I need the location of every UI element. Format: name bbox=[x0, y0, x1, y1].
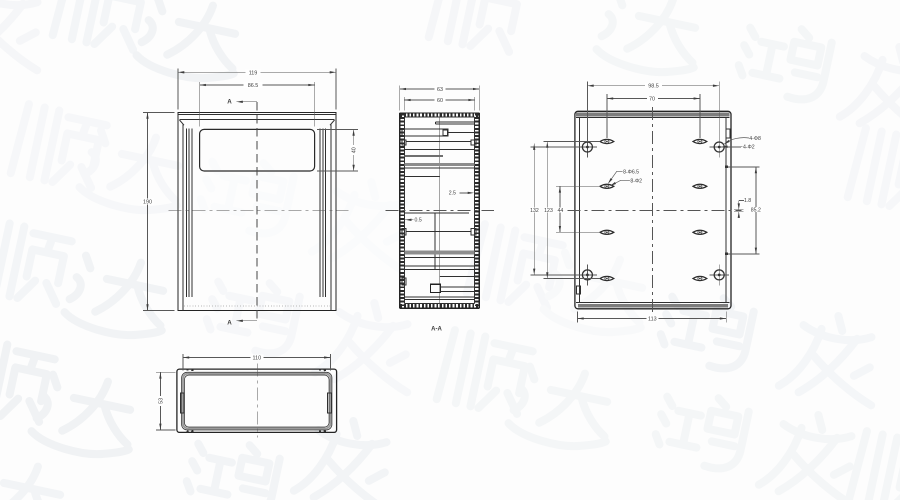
svg-text:2.5: 2.5 bbox=[449, 191, 456, 197]
svg-text:110: 110 bbox=[253, 355, 262, 361]
svg-text:113: 113 bbox=[648, 316, 657, 322]
svg-text:4-Φ8: 4-Φ8 bbox=[749, 136, 761, 142]
svg-text:A: A bbox=[227, 320, 232, 327]
svg-text:85.2: 85.2 bbox=[751, 207, 761, 213]
svg-text:44: 44 bbox=[558, 208, 564, 214]
svg-text:A: A bbox=[227, 98, 232, 105]
svg-text:86.5: 86.5 bbox=[248, 83, 259, 89]
svg-text:1.8: 1.8 bbox=[744, 198, 751, 204]
svg-text:8-Φ2: 8-Φ2 bbox=[630, 178, 642, 184]
svg-text:60: 60 bbox=[437, 98, 443, 104]
svg-text:63: 63 bbox=[437, 87, 443, 93]
svg-text:40: 40 bbox=[352, 147, 358, 153]
svg-text:4-Φ2: 4-Φ2 bbox=[743, 144, 755, 150]
svg-text:70: 70 bbox=[649, 96, 655, 102]
svg-text:123: 123 bbox=[544, 208, 553, 214]
svg-text:0.5: 0.5 bbox=[415, 218, 422, 224]
svg-text:190: 190 bbox=[143, 199, 152, 205]
svg-text:53: 53 bbox=[158, 398, 164, 404]
svg-text:8-Φ6.5: 8-Φ6.5 bbox=[623, 169, 639, 175]
svg-text:A-A: A-A bbox=[431, 326, 442, 332]
svg-text:119: 119 bbox=[249, 70, 258, 76]
svg-text:132: 132 bbox=[530, 208, 539, 214]
svg-text:98.5: 98.5 bbox=[648, 84, 659, 90]
